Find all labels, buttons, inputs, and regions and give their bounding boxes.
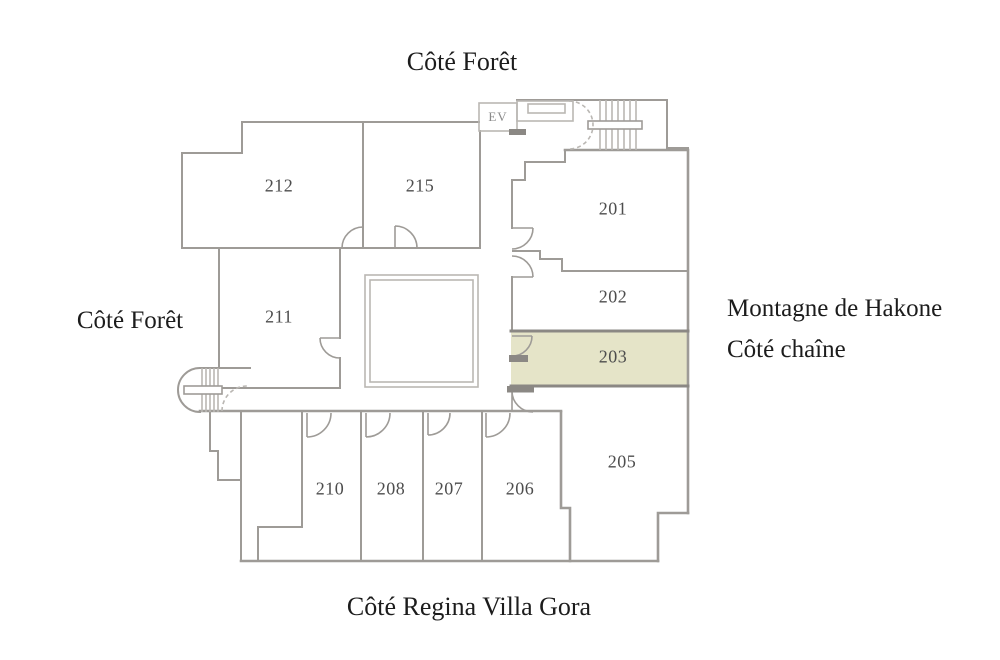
room-label-210: 210 — [316, 479, 345, 500]
label-right-mountain-line1: Montagne de Hakone — [727, 295, 942, 323]
elevator-label: EV — [488, 109, 507, 125]
central-shaft — [365, 275, 478, 387]
label-bottom-regina-villa-side: Côté Regina Villa Gora — [347, 592, 591, 622]
room-label-211: 211 — [265, 307, 293, 328]
door-arc-215 — [395, 226, 417, 248]
wall-stub — [507, 386, 534, 393]
wall-stub — [509, 355, 528, 362]
room-label-202: 202 — [599, 287, 628, 308]
label-top-forest-side: Côté Forêt — [407, 47, 518, 77]
door-arc-201 — [512, 228, 533, 249]
stair-handrail — [588, 121, 642, 129]
label-left-forest-side: Côté Forêt — [77, 307, 183, 335]
door-arc-202 — [512, 256, 533, 277]
door-arc-210 — [307, 413, 331, 437]
room-label-207: 207 — [435, 479, 464, 500]
door-arc-206 — [486, 413, 510, 437]
elevator-door-panel — [528, 104, 565, 113]
staircase-icon — [569, 100, 642, 150]
spiral-stair-icon — [178, 368, 250, 412]
room-label-201: 201 — [599, 199, 628, 220]
door-arc-205 — [512, 391, 533, 412]
door-arc-207 — [428, 413, 450, 435]
floor-plan-page: Côté Forêt Côté Forêt Montagne de Hakone… — [0, 0, 1000, 660]
room-label-208: 208 — [377, 479, 406, 500]
door-arc-208 — [366, 413, 390, 437]
doors — [307, 226, 534, 437]
room-label-206: 206 — [506, 479, 535, 500]
stair-handrail — [184, 386, 222, 394]
stair-door-swing — [222, 386, 247, 411]
wall-stub — [509, 129, 526, 135]
room-label-205: 205 — [608, 452, 637, 473]
door-arc-211 — [320, 338, 340, 358]
room-label-203: 203 — [599, 347, 628, 368]
door-arc-212 — [342, 227, 363, 248]
room-label-215: 215 — [406, 176, 435, 197]
label-right-mountain-line2: Côté chaîne — [727, 336, 846, 364]
room-label-212: 212 — [265, 176, 294, 197]
